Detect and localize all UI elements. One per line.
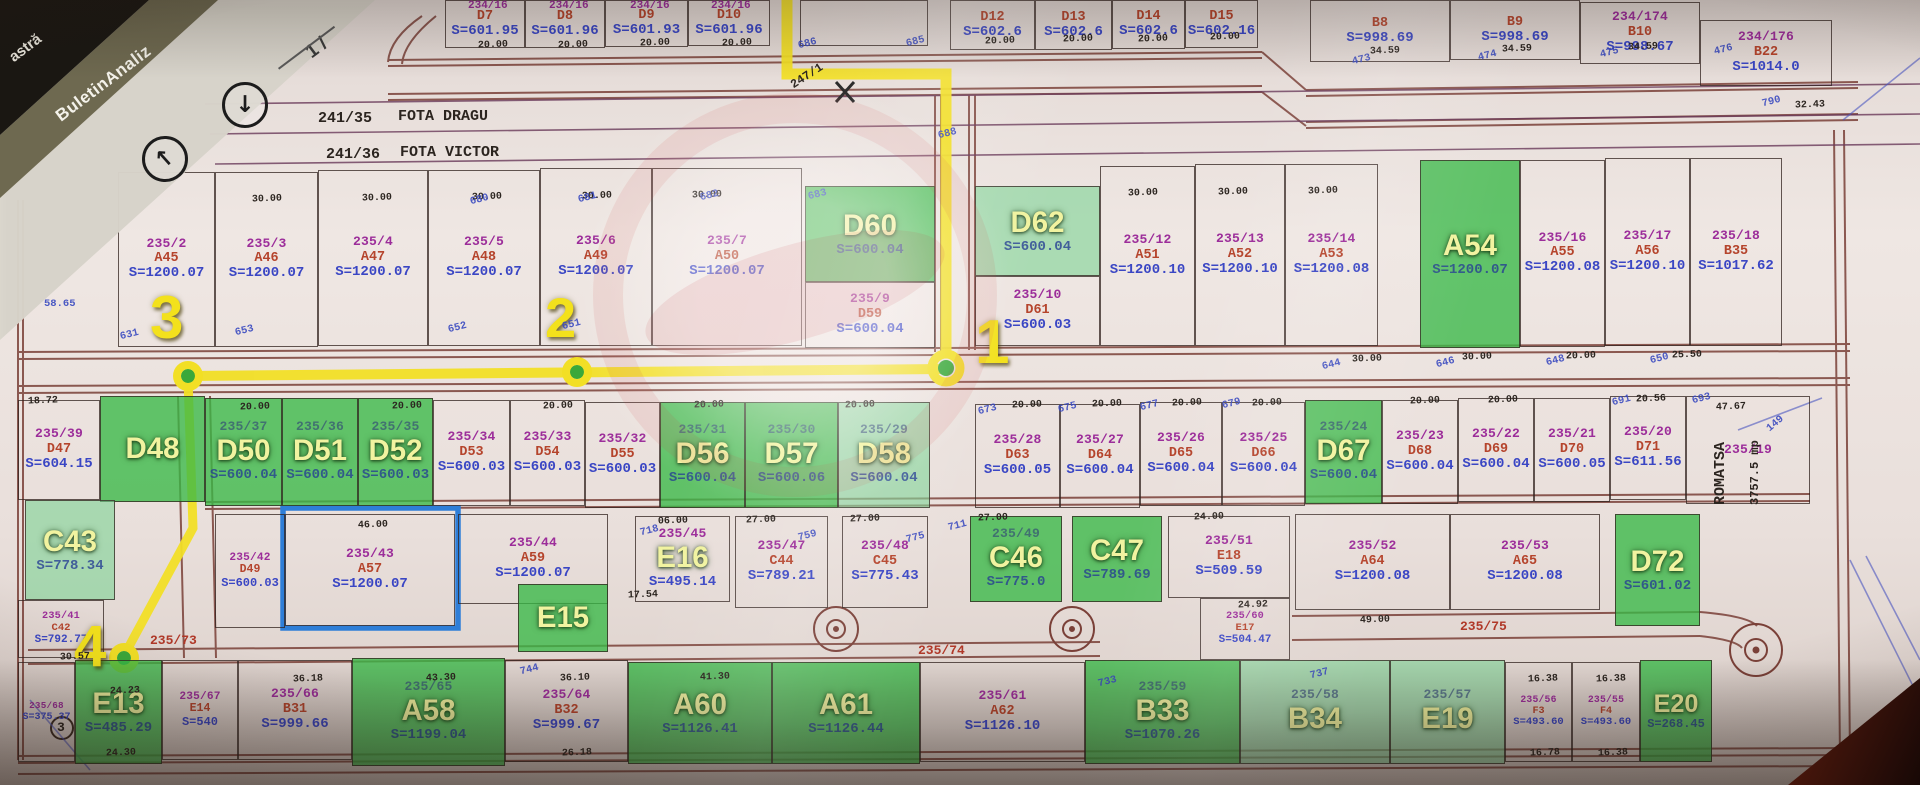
parcel-a62: 235/61A62S=1126.10 — [920, 662, 1085, 762]
parcel-code: D47 — [47, 442, 71, 457]
parcel-code: C44 — [769, 554, 793, 569]
parcel-number: 235/58 — [1291, 688, 1339, 703]
parcel-code: A48 — [472, 250, 496, 265]
parcel-code: A49 — [584, 249, 608, 264]
parcel-code: D58 — [857, 438, 911, 471]
parcel-a65: 235/53A65S=1200.08 — [1450, 514, 1600, 610]
parcel-number: 235/32 — [598, 432, 646, 447]
parcel-code: A52 — [1228, 247, 1252, 262]
parcel-area: S=1200.10 — [1110, 263, 1186, 279]
parcel-code: B22 — [1754, 45, 1778, 60]
parcel-d72: D72S=601.02 — [1615, 514, 1700, 626]
parcel-area: S=600.04 — [1066, 463, 1133, 479]
parcel-a61: A61S=1126.44 — [772, 662, 920, 764]
dimension-label: 16.38 — [1596, 673, 1626, 685]
parcel-number: 235/13 — [1216, 232, 1264, 247]
parcel-number: 235/64 — [542, 688, 590, 703]
dimension-label: 20.00 — [1172, 397, 1202, 409]
parcel-number: 234/174 — [1612, 10, 1668, 25]
parcel-code: D64 — [1088, 448, 1112, 463]
parcel-area: S=1200.07 — [446, 265, 522, 281]
parcel-area: S=778.34 — [36, 559, 103, 575]
survey-point-number: 688 — [937, 126, 958, 142]
parcel-a56: 235/17A56S=1200.10 — [1605, 158, 1690, 346]
parcel-number: 235/55 — [1588, 695, 1624, 706]
dimension-label: 16.78 — [1530, 747, 1560, 759]
down-arrow-icon: ↓ — [235, 92, 254, 118]
parcel-number: 235/33 — [523, 430, 571, 445]
parcel-area: S=1126.44 — [808, 722, 884, 738]
dimension-label: 20.00 — [392, 400, 422, 412]
parcel-code: D15 — [1209, 9, 1233, 24]
parcel-area: S=1200.07 — [689, 264, 765, 280]
parcel-number: 235/37 — [219, 420, 267, 435]
parcel-d62: D62S=600.04 — [975, 186, 1100, 276]
parcel-area: S=600.04 — [850, 471, 917, 487]
survey-point-number: 648 — [1545, 353, 1566, 369]
parcel-number: 235/12 — [1123, 233, 1171, 248]
parcel-code: D14 — [1136, 9, 1160, 24]
parcel-area: S=600.04 — [836, 243, 903, 259]
parcel-area: S=600.03 — [589, 462, 656, 478]
dimension-label: 49.00 — [1360, 614, 1390, 626]
dimension-label: 20.00 — [478, 39, 508, 51]
dimension-label: 20.00 — [985, 35, 1015, 47]
parcel-code: D69 — [1484, 442, 1508, 457]
parcel-area: S=998.69 — [1481, 30, 1548, 46]
parcel-area: S=999.67 — [533, 718, 600, 734]
parcel-area: S=600.05 — [1538, 457, 1605, 473]
parcel-number: 235/5 — [464, 235, 504, 250]
parcel-number: 235/45 — [658, 527, 706, 542]
parcel-e19: 235/57E19 — [1390, 660, 1505, 764]
dimension-label: 36.18 — [293, 673, 323, 685]
dimension-label: 16.38 — [1598, 747, 1628, 759]
dimension-label: 20.00 — [722, 37, 752, 49]
dimension-label: 20.00 — [1488, 394, 1518, 406]
parcel-code: A61 — [819, 689, 873, 722]
parcel-area: S=600.04 — [836, 322, 903, 338]
parcel-d63: 235/28D63S=600.05 — [975, 404, 1060, 508]
parcel-d50: 235/37D50S=600.04 — [205, 398, 282, 506]
parcel-code: D68 — [1408, 444, 1432, 459]
dimension-label: 24.00 — [1194, 511, 1224, 523]
parcel-area: S=600.04 — [1004, 240, 1071, 256]
parcel-code: D62 — [1011, 207, 1065, 240]
parcel-code: D56 — [676, 438, 730, 471]
parcel-number: 235/68 — [29, 701, 64, 711]
dimension-label: 34.59 — [1502, 43, 1532, 55]
parcel-code: B9 — [1507, 15, 1523, 30]
parcel-number: 235/61 — [978, 689, 1026, 704]
annotation-point-label: 4 — [74, 618, 106, 676]
parcel-d71: 235/20D71S=611.56 — [1610, 396, 1686, 500]
parcel-code: B31 — [283, 702, 307, 717]
parcel-code: D61 — [1025, 303, 1049, 318]
parcel-d51: 235/36D51S=600.04 — [282, 398, 358, 506]
parcel-code: D60 — [843, 210, 897, 243]
parcel-code: D72 — [1631, 546, 1685, 579]
parcel-d53: 235/34D53S=600.03 — [433, 400, 510, 506]
map-label: 234/16 — [549, 0, 589, 12]
parcel-number: 235/24 — [1319, 420, 1367, 435]
parcel-d58: 235/29D58S=600.04 — [838, 402, 930, 508]
parcel-area: S=600.04 — [1147, 461, 1214, 477]
parcel-area: S=600.04 — [1230, 461, 1297, 477]
parcel-number: 235/27 — [1076, 433, 1124, 448]
parcel-number: 235/29 — [860, 423, 908, 438]
parcel-number: 235/6 — [576, 234, 616, 249]
parcel-area: S=600.04 — [210, 468, 277, 484]
dimension-label: 16.38 — [1528, 673, 1558, 685]
parcel-number: 235/30 — [767, 423, 815, 438]
parcel-area: S=493.60 — [1513, 717, 1563, 729]
survey-point-number: 644 — [1321, 357, 1342, 373]
scroll-down-button[interactable]: ↓ — [222, 82, 268, 128]
road-label: 235/73 — [150, 633, 197, 648]
parcel-c46: 235/49C46S=775.0 — [970, 516, 1062, 602]
parcel-area: S=998.69 — [1346, 31, 1413, 47]
parcel-area: S=1199.04 — [391, 728, 467, 744]
map-label: 3757.5 mp — [1748, 440, 1762, 505]
parcel-area: S=493.60 — [1581, 717, 1631, 729]
parcel-code: D50 — [217, 435, 271, 468]
parcel-c45: 235/48C45S=775.43 — [842, 516, 928, 608]
dimension-label: 36.10 — [560, 672, 590, 684]
dimension-label: 47.67 — [1716, 401, 1746, 413]
parcel-a54: A54S=1200.07 — [1420, 160, 1520, 348]
parcel-code: E19 — [1421, 703, 1473, 736]
parcel-code: D59 — [858, 307, 882, 322]
survey-point-number: 711 — [947, 518, 968, 534]
survey-point-number: 646 — [1435, 355, 1456, 371]
parcel-number: 235/10 — [1013, 288, 1061, 303]
dimension-label: 27.00 — [978, 512, 1008, 524]
parcel-number: 235/25 — [1239, 431, 1287, 446]
parcel-e20: E20S=268.45 — [1640, 660, 1712, 762]
parcel-e14: 235/67E14S=540 — [162, 660, 238, 760]
parcel-code: E17 — [1236, 623, 1255, 635]
parcel-code: A58 — [402, 695, 456, 728]
dimension-label: 20.00 — [1012, 399, 1042, 411]
parcel-number: 235/57 — [1423, 688, 1471, 703]
parcel-d65: 235/26D65S=600.04 — [1140, 402, 1222, 506]
parcel-code: C47 — [1090, 535, 1144, 568]
parcel-area: S=600.05 — [984, 463, 1051, 479]
road-label: 235/75 — [1460, 619, 1507, 634]
dimension-label: 30.00 — [1462, 351, 1492, 363]
parcel-code: D48 — [126, 433, 180, 466]
parcel-code: C43 — [43, 526, 97, 559]
dimension-label: 27.00 — [746, 514, 776, 526]
parcel-b35: 235/18B35S=1017.62 — [1690, 158, 1782, 346]
dimension-label: 18.72 — [28, 395, 58, 407]
survey-point-number: 790 — [1761, 94, 1782, 110]
dimension-label: 34.59 — [1628, 41, 1658, 53]
parcel-d56: 235/31D56S=600.04 — [660, 402, 745, 508]
parcel-d68: 235/23D68S=600.04 — [1382, 400, 1458, 504]
parcel-area: S=611.56 — [1614, 455, 1681, 471]
parcel-number: 235/49 — [992, 527, 1040, 542]
parcel-d69: 235/22D69S=600.04 — [1458, 398, 1534, 502]
dimension-label: 30.00 — [1128, 187, 1158, 199]
parcel-d60: D60S=600.04 — [805, 186, 935, 282]
dimension-label: 41.30 — [700, 671, 730, 683]
dimension-label: 20.00 — [1092, 398, 1122, 410]
dimension-label: 20.00 — [1566, 350, 1596, 362]
dimension-label: 17.54 — [628, 589, 658, 601]
dimension-label: 06.00 — [658, 515, 688, 527]
parcel-area: S=600.03 — [221, 577, 279, 590]
parcel-d48: D48 — [100, 396, 205, 502]
parcel-code: A54 — [1443, 230, 1497, 263]
parcel-area: S=1017.62 — [1698, 259, 1774, 275]
dimension-label: 20.56 — [1636, 393, 1666, 405]
parcel-number: 235/48 — [861, 539, 909, 554]
parcel-area: S=1126.10 — [965, 719, 1041, 735]
dimension-label: 27.00 — [850, 513, 880, 525]
parcel-code: B8 — [1372, 16, 1388, 31]
map-label: 234/16 — [630, 0, 670, 12]
dimension-label: 20.00 — [1210, 31, 1240, 43]
parcel-code: D57 — [765, 438, 819, 471]
parcel-number: 235/34 — [447, 430, 495, 445]
dimension-label: 34.59 — [1370, 45, 1400, 57]
parcel-code: E18 — [1217, 549, 1241, 564]
parcel-area: S=600.03 — [514, 460, 581, 476]
parcel-number: 235/31 — [678, 423, 726, 438]
parcel-code: A51 — [1135, 248, 1159, 263]
parcel-code: D70 — [1560, 442, 1584, 457]
dimension-label: 46.00 — [358, 519, 388, 531]
parcel-number: 235/53 — [1501, 539, 1549, 554]
parcel-a64: 235/52A64S=1200.08 — [1295, 514, 1450, 610]
parcel-c43: C43S=778.34 — [25, 500, 115, 600]
parcel-number: 235/39 — [35, 427, 83, 442]
parcel-number: 235/59 — [1138, 680, 1186, 695]
parcel-area: S=1014.0 — [1732, 60, 1799, 76]
parcel-area: S=600.04 — [1462, 457, 1529, 473]
parcel-number: 235/60 — [1226, 611, 1264, 622]
parcel-number: 235/9 — [850, 292, 890, 307]
parcel-area: S=600.04 — [286, 468, 353, 484]
parcel-area: S=775.0 — [987, 575, 1046, 591]
parcel-code: D12 — [980, 10, 1004, 25]
parcel-d66: 235/25D66S=600.04 — [1222, 402, 1305, 506]
parcel-code: D53 — [459, 445, 483, 460]
parcel-e15: E15 — [518, 584, 608, 652]
dimension-label: 20.00 — [1410, 395, 1440, 407]
parcel-number: 235/7 — [707, 234, 747, 249]
parcel-number: 235/36 — [296, 420, 344, 435]
parcel-area: S=601.02 — [1624, 579, 1691, 595]
parcel-code: A65 — [1513, 554, 1537, 569]
parcel-area: S=1126.41 — [662, 722, 738, 738]
parcel-code: A62 — [990, 704, 1014, 719]
parcel-area: S=601.95 — [451, 24, 518, 40]
parcel-code: D66 — [1251, 446, 1275, 461]
parcel-code: D67 — [1317, 435, 1371, 468]
parcel-number: 235/35 — [371, 420, 419, 435]
parcel-area: S=1200.07 — [1432, 263, 1508, 279]
map-label: 234/16 — [711, 0, 751, 12]
parcel-code: C45 — [873, 554, 897, 569]
parcel-area: S=604.15 — [25, 457, 92, 473]
parcel-area: S=509.59 — [1195, 564, 1262, 580]
dimension-label: 20.00 — [845, 399, 875, 411]
parcel-code: B33 — [1136, 695, 1190, 728]
parcel-area: S=1200.08 — [1294, 262, 1370, 278]
dimension-label: 26.18 — [562, 747, 592, 759]
parcel-code: E15 — [537, 602, 589, 635]
up-left-arrow-icon: ↑ — [149, 143, 181, 175]
parcel-area: S=601.96 — [695, 23, 762, 39]
dimension-label: 43.30 — [426, 672, 456, 684]
parcel-number: 235/18 — [1712, 229, 1760, 244]
parcel-d49: 235/42D49S=600.03 — [215, 514, 285, 628]
road-label: 235/74 — [918, 643, 965, 658]
dimension-label: 20.00 — [640, 37, 670, 49]
parcel-d64: 235/27D64S=600.04 — [1060, 404, 1140, 508]
parcel-number: 235/26 — [1157, 431, 1205, 446]
parcel-d47: 235/39D47S=604.15 — [18, 400, 100, 500]
parcel-area: S=1200.10 — [1610, 259, 1686, 275]
parcel-area: S=775.43 — [851, 569, 918, 585]
parcel-code: A64 — [1360, 554, 1384, 569]
parcel-area: S=1200.08 — [1487, 569, 1563, 585]
parcel-area: S=1200.08 — [1335, 569, 1411, 585]
dimension-label: 20.00 — [558, 39, 588, 51]
parcel-area: S=600.04 — [1386, 459, 1453, 475]
dimension-label: 30.00 — [1218, 186, 1248, 198]
parcel-b10: 234/174B10S=998.67 — [1580, 2, 1700, 64]
parcel-area: S=600.03 — [438, 460, 505, 476]
dimension-label: 24.23 — [110, 685, 140, 697]
dimension-label: 20.00 — [694, 399, 724, 411]
parcel-area: S=1200.07 — [495, 566, 571, 582]
parcel-e18: 235/51E18S=509.59 — [1168, 516, 1290, 598]
survey-point-number: 650 — [1649, 351, 1670, 367]
parcel-number: 235/14 — [1307, 232, 1355, 247]
parcel-d57: 235/30D57S=600.06 — [745, 402, 838, 508]
parcel-code: C46 — [989, 542, 1043, 575]
parcel-area: S=600.04 — [669, 471, 736, 487]
parcel-area: S=1200.07 — [332, 577, 408, 593]
parcel-number: 235/16 — [1538, 231, 1586, 246]
parcel-code: C42 — [52, 623, 71, 635]
parcel-code: D52 — [369, 435, 423, 468]
parcel-code: E16 — [656, 542, 708, 575]
parcel-code: D54 — [535, 445, 559, 460]
parcel-code: A57 — [358, 562, 382, 577]
parcel-code: B32 — [554, 703, 578, 718]
parcel-code: A55 — [1550, 245, 1574, 260]
parcel-code: A59 — [521, 551, 545, 566]
parcel-number: 235/66 — [271, 687, 319, 702]
parcel-code: B35 — [1724, 244, 1748, 259]
parcel-c47: C47S=789.69 — [1072, 516, 1162, 602]
parcel-d55: 235/32D55S=600.03 — [585, 402, 660, 508]
scanner-ui-overlay: astră BuletinAnaliz 1 / ↓ ↑ — [0, 0, 420, 380]
parcel-number: 235/23 — [1396, 429, 1444, 444]
parcel-code: D65 — [1169, 446, 1193, 461]
parcel-area: S=495.14 — [649, 575, 716, 591]
map-label: ROMATSA — [1712, 442, 1729, 505]
dimension-label: 20.00 — [1138, 33, 1168, 45]
parcel-code: A60 — [673, 689, 727, 722]
parcel-area: S=268.45 — [1647, 718, 1705, 731]
dimension-label: 30.57 — [60, 651, 90, 663]
parcel-d59: 235/9D59S=600.04 — [805, 282, 935, 348]
dimension-label: 20.00 — [543, 400, 573, 412]
parcel-code: B34 — [1288, 703, 1342, 736]
parcel-code: D55 — [610, 447, 634, 462]
parcel-d52: 235/35D52S=600.03 — [358, 398, 433, 506]
parcel-code: E20 — [1654, 690, 1699, 718]
parcel-area: S=789.69 — [1083, 568, 1150, 584]
parcel-number: 235/17 — [1623, 229, 1671, 244]
parcel-code: D51 — [293, 435, 347, 468]
dimension-label: 20.00 — [1063, 33, 1093, 45]
map-label: 3 — [57, 720, 65, 735]
parcel-number: 235/21 — [1548, 427, 1596, 442]
parcel-number: 235/56 — [1520, 695, 1556, 706]
parcel-area: S=540 — [182, 716, 218, 729]
parcel-area: S=999.66 — [261, 717, 328, 733]
parcel-area: S=601.93 — [613, 23, 680, 39]
annotation-point-label: 1 — [975, 312, 1009, 374]
parcel-code: D13 — [1061, 10, 1085, 25]
parcel-235-68: 235/68S=375.37 — [18, 662, 75, 762]
dimension-label: 32.43 — [1795, 99, 1825, 111]
dimension-label: 24.30 — [106, 747, 136, 759]
dimension-label: 25.50 — [1672, 349, 1702, 361]
map-label: 234/16 — [468, 0, 508, 12]
dimension-label: 20.00 — [1252, 397, 1282, 409]
parcel-code: D71 — [1636, 440, 1660, 455]
parcel-d70: 235/21D70S=600.05 — [1534, 398, 1610, 502]
parcel-number: 235/43 — [346, 547, 394, 562]
parcel-area: S=789.21 — [748, 569, 815, 585]
parcel-area: S=485.29 — [85, 721, 152, 737]
dimension-label: 20.00 — [240, 401, 270, 413]
parcel-number: 235/22 — [1472, 427, 1520, 442]
parcel-number: 234/176 — [1738, 30, 1794, 45]
parcel-number: 235/44 — [509, 536, 557, 551]
parcel-area: S=504.47 — [1219, 634, 1272, 646]
parcel-area: S=1200.08 — [1525, 260, 1601, 276]
parcel-code: A53 — [1319, 247, 1343, 262]
parcel-a50: 235/7A50S=1200.07 — [652, 168, 802, 346]
parcel-number: 235/20 — [1624, 425, 1672, 440]
parcel-code: B10 — [1628, 25, 1652, 40]
parcel-area: S=1070.26 — [1125, 728, 1201, 744]
cadastral-map-photo: D7S=601.95D8S=601.96D9S=601.93D10S=601.9… — [0, 0, 1920, 785]
dimension-label: 30.00 — [1352, 353, 1382, 365]
parcel-area: S=1200.07 — [558, 264, 634, 280]
parcel-code: A50 — [715, 249, 739, 264]
parcel-area: S=600.03 — [1004, 318, 1071, 334]
parcel-a55: 235/16A55S=1200.08 — [1520, 160, 1605, 347]
parcel-area: S=600.04 — [1310, 468, 1377, 484]
map-label: 247/1 — [788, 60, 826, 91]
parcel-number: 235/51 — [1205, 534, 1253, 549]
parcel-code: A56 — [1635, 244, 1659, 259]
parcel-area: S=600.06 — [758, 471, 825, 487]
parcel-code: D63 — [1005, 448, 1029, 463]
parcel-area: S=600.03 — [362, 468, 429, 484]
dimension-label: 30.00 — [1308, 185, 1338, 197]
